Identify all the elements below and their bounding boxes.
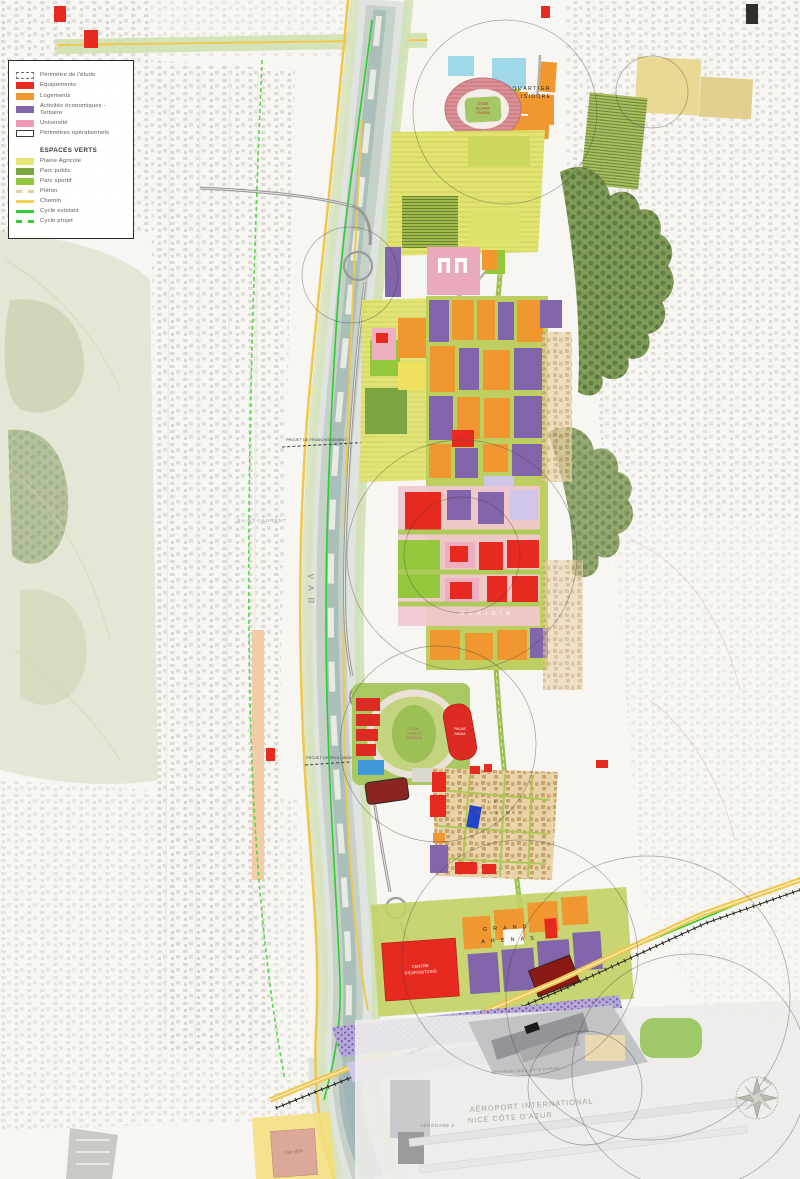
legend-item-universite: Université	[16, 120, 126, 127]
stade-allianz-label-1: STADE	[477, 102, 489, 106]
stade-charles-label-2: CHARLES	[406, 732, 421, 736]
legend-label: Activités économiques - Tertiaire	[40, 103, 126, 117]
legend-swatch-perimetres-op	[16, 130, 34, 137]
legend-item-parc-sportif: Parc sportif	[16, 178, 126, 185]
map-legend: Périmètre de l'étude Équipements Logemen…	[8, 60, 134, 239]
var-river-label: VAR	[306, 574, 315, 611]
legend-swatch-cycle-projet	[16, 220, 34, 223]
legend-label: Équipements	[40, 82, 76, 89]
stade-allianz-label-2: ALLIANZ	[476, 107, 490, 111]
palais-nikaia-label-2: NIKAIA	[454, 732, 466, 736]
legend-item-parc-public: Parc public	[16, 168, 126, 175]
legend-swatch-logements	[16, 93, 34, 100]
meridia-label: MERIDIA	[460, 611, 514, 617]
legend-item-chemin: Chemin	[16, 198, 126, 205]
legend-swatch-activites	[16, 106, 34, 113]
les-moulins-label-2: MOULINS	[476, 810, 518, 815]
legend-item-perimetre-etude: Périmètre de l'étude	[16, 72, 126, 79]
legend-label: Périmètre de l'étude	[40, 72, 96, 79]
legend-section-espaces-verts: ESPACES VERTS	[40, 147, 126, 154]
legend-label: Université	[40, 120, 68, 127]
legend-label: Piéton	[40, 188, 58, 195]
legend-swatch-universite	[16, 120, 34, 127]
legend-swatch-pieton	[16, 190, 34, 193]
legend-item-cycle-projet: Cycle projet	[16, 218, 126, 225]
legend-label: Logements	[40, 93, 71, 100]
legend-swatch-plaine-agricole	[16, 158, 34, 165]
legend-swatch-cycle-existant	[16, 210, 34, 213]
legend-item-activites: Activités économiques - Tertiaire	[16, 103, 126, 117]
les-moulins-district: LES MOULINS	[430, 764, 558, 880]
legend-item-plaine-agricole: Plaine Agricole	[16, 158, 126, 165]
legend-swatch-parc-sportif	[16, 178, 34, 185]
legend-label: Cycle existant	[40, 208, 79, 215]
legend-item-equipements: Équipements	[16, 82, 126, 89]
legend-item-pieton: Piéton	[16, 188, 126, 195]
stade-allianz-label-3: RIVIERA	[476, 111, 490, 115]
legend-item-perimetres-op: Périmètres opérationnels	[16, 130, 126, 137]
legend-item-logements: Logements	[16, 93, 126, 100]
plan-guide-map: VAR PROJET DE FRANCHISSEMENT PROJET DE P…	[0, 0, 800, 1179]
legend-label: Parc public	[40, 168, 71, 175]
stade-charles-label-1: STADE	[409, 727, 419, 731]
franchissement-label: PROJET DE FRANCHISSEMENT	[286, 437, 347, 442]
legend-label: Chemin	[40, 198, 61, 205]
legend-label: Cycle projet	[40, 218, 73, 225]
aerogare2-label: AÉROGARE 2	[420, 1123, 455, 1128]
les-moulins-label-1: LES	[488, 799, 506, 804]
saint-laurent-label: SAINT-LAURENT	[237, 518, 286, 523]
legend-swatch-perimetre-etude	[16, 72, 34, 79]
legend-label: Parc sportif	[40, 178, 72, 185]
legend-swatch-parc-public	[16, 168, 34, 175]
stade-charles-label-3: EHRMANN	[406, 736, 423, 740]
palais-nikaia-label-1: PALAIS	[454, 727, 466, 731]
legend-swatch-chemin	[16, 200, 34, 203]
legend-label: Plaine Agricole	[40, 158, 81, 165]
legend-swatch-equipements	[16, 82, 34, 89]
legend-label: Périmètres opérationnels	[40, 130, 109, 137]
grand-arenas-district: CENTRE D'EXPOSITIONS GRAND ARENAS	[371, 887, 634, 1017]
legend-item-cycle-existant: Cycle existant	[16, 208, 126, 215]
airport-area: AÉROPORT NICE-CÔTE D'AZUR AÉROGARE 2 AÉR…	[355, 1000, 800, 1179]
